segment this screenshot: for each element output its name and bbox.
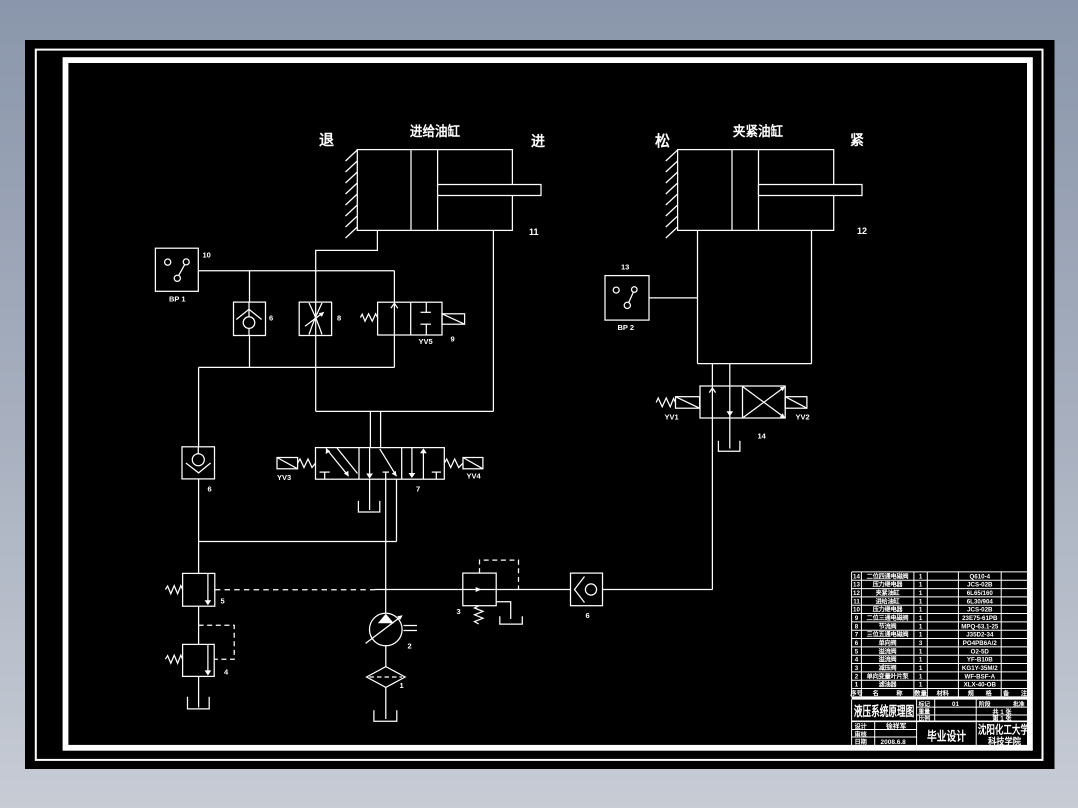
- svg-text:徐祥军: 徐祥军: [885, 722, 907, 731]
- svg-text:6: 6: [855, 640, 859, 647]
- svg-text:名 称: 名 称: [873, 689, 904, 697]
- svg-text:YV2: YV2: [796, 413, 810, 422]
- svg-text:数量: 数量: [914, 689, 927, 697]
- svg-text:三位五通电磁阀: 三位五通电磁阀: [867, 631, 909, 639]
- svg-text:1: 1: [919, 607, 923, 614]
- svg-text:1: 1: [919, 657, 923, 664]
- svg-text:1: 1: [919, 615, 923, 622]
- svg-text:7: 7: [855, 632, 859, 639]
- svg-text:13: 13: [621, 263, 629, 272]
- svg-text:YV5: YV5: [419, 337, 433, 346]
- svg-text:审核: 审核: [855, 730, 868, 738]
- svg-text:YV1: YV1: [665, 413, 679, 422]
- svg-text:6: 6: [269, 314, 273, 323]
- svg-text:批准: 批准: [1013, 700, 1025, 708]
- svg-text:8: 8: [337, 314, 341, 323]
- svg-text:MPQ-63.1-25: MPQ-63.1-25: [961, 623, 999, 630]
- svg-text:节流阀: 节流阀: [879, 622, 897, 630]
- svg-text:二位四通电磁阀: 二位四通电磁阀: [867, 572, 909, 580]
- svg-text:4: 4: [855, 657, 859, 664]
- svg-text:1: 1: [919, 573, 923, 580]
- svg-text:溢流阀: 溢流阀: [879, 647, 897, 655]
- svg-text:J35D2-34: J35D2-34: [966, 632, 994, 639]
- svg-text:1: 1: [919, 665, 923, 672]
- svg-text:液压系统原理图: 液压系统原理图: [854, 703, 914, 720]
- svg-text:6: 6: [208, 485, 212, 494]
- svg-text:9: 9: [451, 335, 455, 344]
- svg-text:13: 13: [853, 582, 860, 589]
- svg-text:YV3: YV3: [277, 473, 291, 482]
- svg-text:科技学院: 科技学院: [988, 735, 1021, 746]
- svg-text:O2-5D: O2-5D: [971, 648, 990, 655]
- svg-text:设计: 设计: [855, 723, 868, 731]
- svg-text:减压阀: 减压阀: [879, 664, 897, 672]
- svg-text:1: 1: [919, 632, 923, 639]
- svg-text:8: 8: [855, 623, 859, 630]
- svg-text:BP 2: BP 2: [618, 323, 635, 332]
- svg-text:WF-BSF-A: WF-BSF-A: [965, 673, 996, 680]
- svg-text:11: 11: [529, 227, 539, 237]
- svg-text:01: 01: [952, 701, 959, 708]
- svg-text:11: 11: [853, 598, 860, 605]
- svg-text:YF-B10B: YF-B10B: [967, 657, 993, 664]
- svg-text:5: 5: [221, 597, 225, 606]
- svg-text:10: 10: [853, 607, 860, 614]
- svg-text:10: 10: [203, 251, 211, 260]
- svg-text:XLX-40-OB: XLX-40-OB: [964, 682, 997, 689]
- svg-text:1: 1: [919, 648, 923, 655]
- svg-text:松: 松: [655, 132, 670, 150]
- svg-text:1: 1: [855, 682, 859, 689]
- svg-text:1: 1: [919, 590, 923, 597]
- svg-text:单向变量叶片泵: 单向变量叶片泵: [867, 672, 910, 680]
- svg-text:14: 14: [758, 432, 767, 441]
- svg-text:6: 6: [586, 611, 590, 620]
- svg-text:7: 7: [416, 485, 420, 494]
- svg-text:JCS-02B: JCS-02B: [967, 607, 993, 614]
- svg-text:毕业设计: 毕业设计: [927, 728, 966, 744]
- svg-text:阶段: 阶段: [979, 700, 991, 708]
- svg-text:2008.6.8: 2008.6.8: [881, 739, 907, 746]
- svg-text:单向阀: 单向阀: [879, 639, 897, 647]
- svg-text:YV4: YV4: [467, 472, 482, 481]
- svg-text:规 格: 规 格: [968, 689, 993, 697]
- svg-text:1: 1: [919, 673, 923, 680]
- svg-text:PO4PB6A/2: PO4PB6A/2: [963, 640, 998, 647]
- svg-text:12: 12: [857, 226, 867, 236]
- svg-text:重量: 重量: [919, 708, 931, 716]
- svg-text:1: 1: [400, 681, 404, 690]
- svg-text:3: 3: [855, 665, 859, 672]
- svg-text:退: 退: [319, 132, 334, 149]
- svg-text:9: 9: [855, 615, 859, 622]
- svg-text:夹紧油缸: 夹紧油缸: [876, 589, 901, 597]
- svg-text:夹紧油缸: 夹紧油缸: [733, 124, 783, 140]
- svg-text:Q610-4: Q610-4: [969, 573, 990, 580]
- svg-text:JCS-02B: JCS-02B: [967, 582, 993, 589]
- svg-text:标记: 标记: [918, 700, 931, 708]
- svg-text:压力继电器: 压力继电器: [873, 606, 904, 614]
- svg-text:进给油缸: 进给油缸: [410, 124, 460, 140]
- svg-text:序号: 序号: [849, 689, 862, 697]
- svg-text:进给油缸: 进给油缸: [876, 597, 901, 605]
- svg-text:1: 1: [919, 623, 923, 630]
- svg-text:溢流阀: 溢流阀: [879, 656, 897, 664]
- svg-text:二位三通电磁阀: 二位三通电磁阀: [867, 614, 909, 622]
- svg-text:日期: 日期: [855, 738, 867, 746]
- svg-text:KG1Y-35M/2: KG1Y-35M/2: [962, 665, 998, 672]
- svg-text:3: 3: [919, 640, 923, 647]
- svg-text:3: 3: [457, 607, 461, 616]
- svg-text:1: 1: [919, 582, 923, 589]
- svg-text:1: 1: [919, 682, 923, 689]
- svg-text:沈阳化工大学: 沈阳化工大学: [978, 722, 1029, 737]
- svg-text:1: 1: [919, 598, 923, 605]
- svg-text:5: 5: [855, 648, 859, 655]
- svg-text:BP 1: BP 1: [169, 295, 186, 304]
- svg-text:共 1 张: 共 1 张: [992, 708, 1012, 716]
- svg-text:滤油器: 滤油器: [878, 681, 898, 689]
- svg-text:23E75-61PB: 23E75-61PB: [962, 615, 998, 622]
- svg-text:6L65/160: 6L65/160: [967, 590, 994, 597]
- svg-text:14: 14: [853, 573, 860, 580]
- svg-text:12: 12: [853, 590, 860, 597]
- svg-text:6L30/904: 6L30/904: [967, 598, 994, 605]
- svg-text:紧: 紧: [850, 132, 864, 148]
- svg-text:2: 2: [408, 642, 412, 651]
- svg-text:材料: 材料: [936, 689, 950, 697]
- svg-text:第 1 张: 第 1 张: [991, 715, 1012, 723]
- svg-text:进: 进: [531, 133, 545, 149]
- svg-text:比例: 比例: [919, 714, 931, 722]
- svg-text:压力继电器: 压力继电器: [873, 581, 904, 589]
- svg-text:备 注: 备 注: [1002, 689, 1028, 697]
- svg-text:2: 2: [855, 673, 859, 680]
